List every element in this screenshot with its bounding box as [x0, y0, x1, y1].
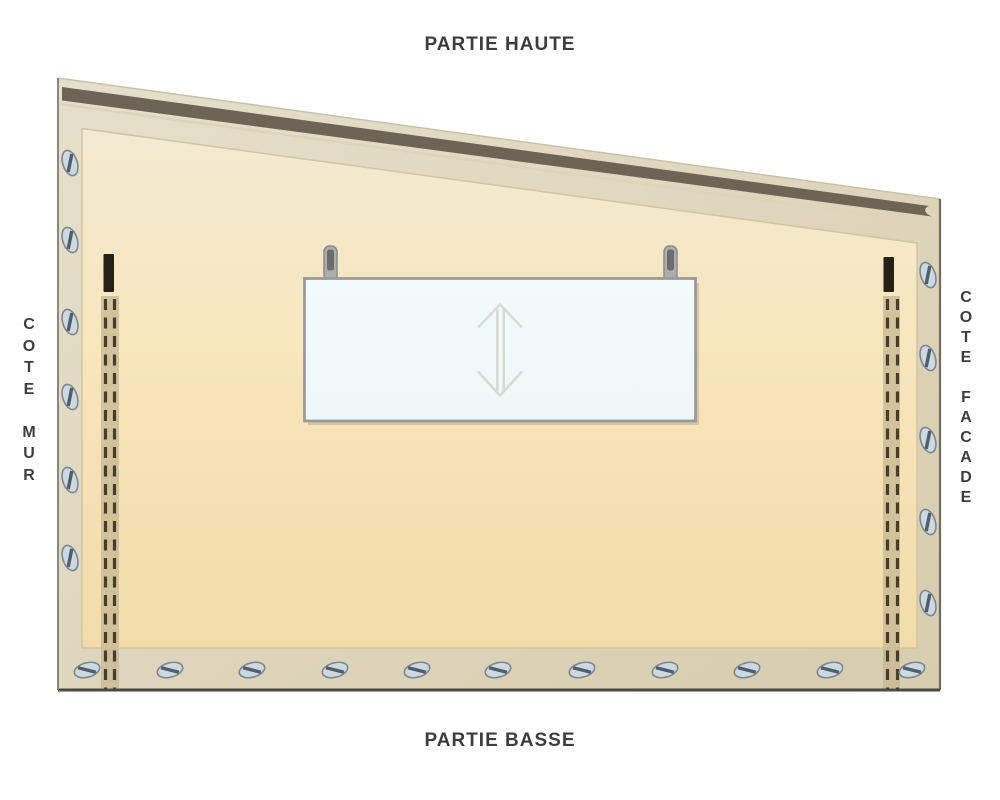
label-cote-mur: C O T E M U R: [4, 314, 54, 486]
window-panel: [305, 279, 696, 422]
label-cote-facade: C O T E F A C A D E: [942, 288, 990, 508]
awning-panel-diagram: PARTIE HAUTE PARTIE BASSE C O T E M U R …: [0, 0, 1000, 800]
panel-drawing: [0, 0, 1000, 800]
label-partie-basse: PARTIE BASSE: [0, 730, 1000, 752]
hanger-clip-icon: [324, 246, 337, 282]
zipper-right-stop: [884, 257, 895, 292]
zipper-left: [101, 254, 119, 689]
zipper-left-strip: [101, 296, 119, 688]
zipper-right: [883, 257, 900, 689]
hanger-clip-icon: [664, 246, 677, 282]
zipper-left-stop: [104, 254, 115, 292]
label-partie-haute: PARTIE HAUTE: [0, 34, 1000, 56]
